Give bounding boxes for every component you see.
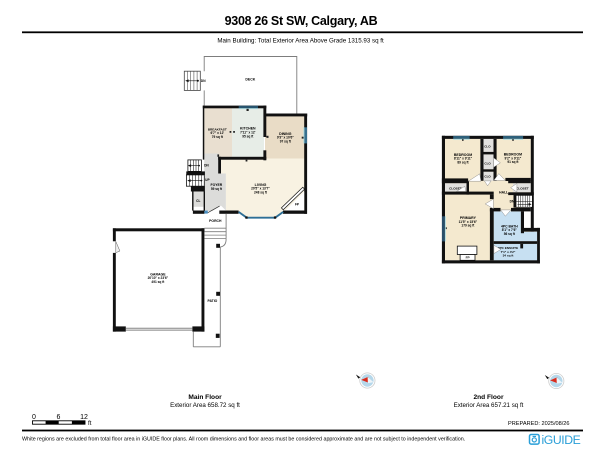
svg-text:DN: DN <box>510 200 515 204</box>
svg-text:9308 26 St SW, Calgary, AB: 9308 26 St SW, Calgary, AB <box>225 14 378 28</box>
svg-text:CLO: CLO <box>484 144 491 148</box>
svg-text:6: 6 <box>57 414 61 421</box>
svg-text:PORCH: PORCH <box>209 219 222 223</box>
svg-text:12: 12 <box>80 414 88 421</box>
svg-text:179 sq ft: 179 sq ft <box>461 224 475 228</box>
svg-text:Exterior Area 658.72 sq ft: Exterior Area 658.72 sq ft <box>170 402 240 409</box>
svg-text:PATIO: PATIO <box>207 299 217 303</box>
svg-text:White regions are excluded fro: White regions are excluded from total fl… <box>22 437 465 443</box>
svg-text:DECK: DECK <box>245 78 255 82</box>
svg-text:491 sq ft: 491 sq ft <box>151 280 165 284</box>
svg-text:ft: ft <box>88 420 92 427</box>
svg-text:97 sq ft: 97 sq ft <box>280 140 292 144</box>
svg-text:PREPARED: 2025/08/26: PREPARED: 2025/08/26 <box>508 421 569 427</box>
svg-text:Exterior Area 657.21 sq ft: Exterior Area 657.21 sq ft <box>454 402 524 409</box>
svg-text:DN: DN <box>201 79 206 83</box>
svg-text:Main Building: Total Exterior: Main Building: Total Exterior Area Above… <box>217 38 384 45</box>
svg-text:CL: CL <box>196 199 200 203</box>
svg-text:Main Floor: Main Floor <box>188 394 222 401</box>
svg-text:56 sq ft: 56 sq ft <box>504 232 516 236</box>
svg-text:89 sq ft: 89 sq ft <box>457 161 469 165</box>
svg-text:59 sq ft: 59 sq ft <box>211 187 223 191</box>
svg-text:CLO: CLO <box>484 175 491 179</box>
svg-text:91 sq ft: 91 sq ft <box>507 160 519 164</box>
svg-text:FP: FP <box>466 256 470 260</box>
svg-text:248 sq ft: 248 sq ft <box>254 190 268 194</box>
svg-text:HALL: HALL <box>499 190 508 194</box>
svg-text:iGUIDE: iGUIDE <box>542 433 581 447</box>
svg-text:CLO: CLO <box>484 162 491 166</box>
svg-text:DN: DN <box>204 163 209 167</box>
svg-text:0: 0 <box>32 414 36 421</box>
svg-text:CLOSET: CLOSET <box>516 187 529 191</box>
svg-text:79 sq ft: 79 sq ft <box>212 135 224 139</box>
svg-text:95 sq ft: 95 sq ft <box>242 135 254 139</box>
svg-text:2nd Floor: 2nd Floor <box>473 394 503 401</box>
svg-text:34 sq ft: 34 sq ft <box>503 254 514 258</box>
